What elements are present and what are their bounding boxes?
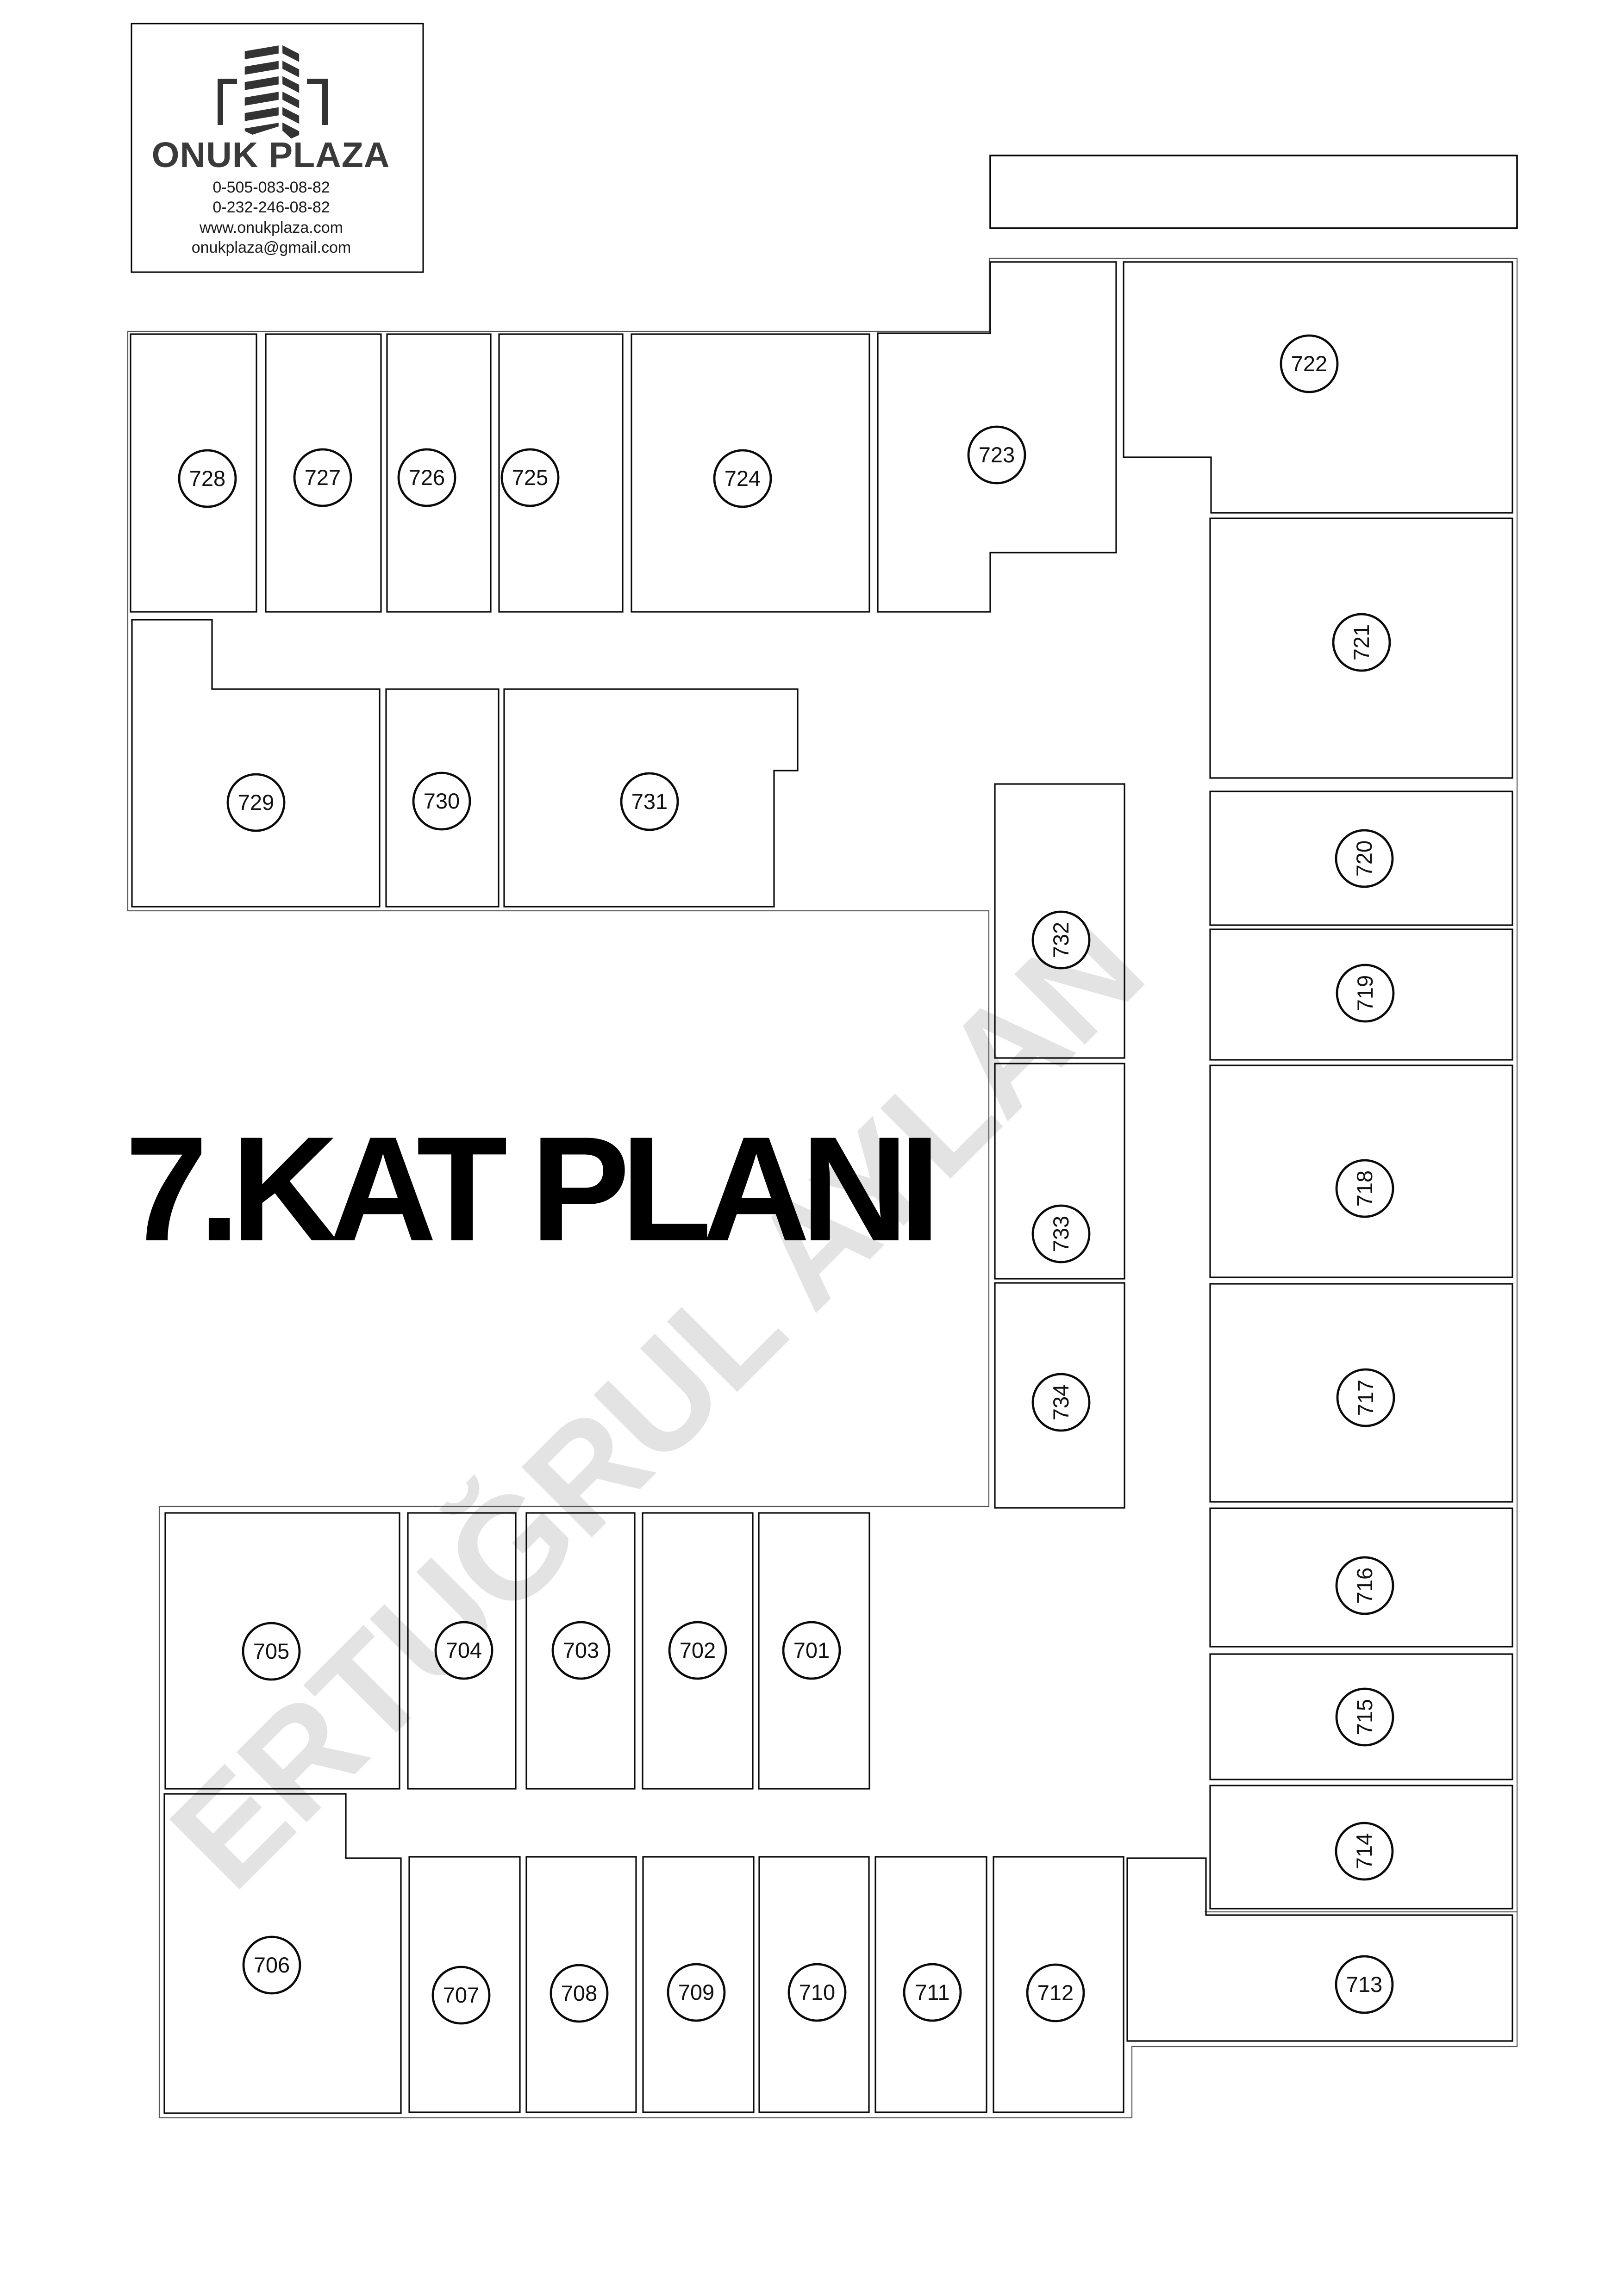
svg-text:723: 723: [979, 442, 1015, 467]
svg-text:706: 706: [254, 1953, 290, 1977]
svg-text:718: 718: [1352, 1170, 1377, 1207]
svg-text:724: 724: [725, 466, 761, 491]
svg-text:onukplaza@gmail.com: onukplaza@gmail.com: [192, 239, 351, 256]
svg-text:712: 712: [1037, 1980, 1074, 2005]
svg-text:708: 708: [561, 1981, 597, 2005]
svg-text:729: 729: [238, 790, 274, 815]
svg-text:709: 709: [678, 1980, 714, 2004]
svg-text:727: 727: [305, 465, 341, 490]
svg-text:720: 720: [1352, 840, 1376, 877]
svg-text:715: 715: [1352, 1699, 1377, 1735]
svg-text:704: 704: [446, 1638, 482, 1662]
svg-text:722: 722: [1291, 351, 1327, 376]
svg-text:www.onukplaza.com: www.onukplaza.com: [199, 219, 343, 236]
svg-text:0-232-246-08-82: 0-232-246-08-82: [212, 199, 330, 216]
svg-text:731: 731: [631, 789, 668, 814]
svg-text:716: 716: [1352, 1568, 1377, 1604]
svg-text:719: 719: [1353, 975, 1377, 1011]
svg-text:0-505-083-08-82: 0-505-083-08-82: [212, 179, 330, 196]
svg-text:710: 710: [799, 1980, 835, 2004]
svg-text:705: 705: [253, 1639, 289, 1663]
svg-text:732: 732: [1049, 922, 1073, 958]
svg-text:721: 721: [1349, 624, 1374, 660]
svg-text:734: 734: [1049, 1384, 1073, 1420]
svg-text:726: 726: [409, 465, 445, 490]
svg-text:717: 717: [1353, 1380, 1378, 1416]
svg-text:714: 714: [1352, 1833, 1376, 1869]
svg-text:703: 703: [563, 1638, 599, 1662]
svg-text:701: 701: [793, 1638, 830, 1662]
svg-text:711: 711: [915, 1980, 950, 2004]
svg-text:733: 733: [1049, 1216, 1073, 1252]
svg-text:730: 730: [424, 789, 460, 813]
svg-text:713: 713: [1346, 1972, 1382, 1997]
svg-text:725: 725: [512, 465, 548, 490]
svg-text:728: 728: [189, 466, 225, 491]
svg-text:702: 702: [680, 1638, 716, 1662]
svg-text:ONUK PLAZA: ONUK PLAZA: [152, 135, 390, 175]
svg-text:707: 707: [443, 1983, 479, 2007]
svg-text:ERTUĞRUL AYLAN: ERTUĞRUL AYLAN: [141, 887, 1173, 1918]
svg-text:7.KAT PLANI: 7.KAT PLANI: [125, 1106, 932, 1272]
